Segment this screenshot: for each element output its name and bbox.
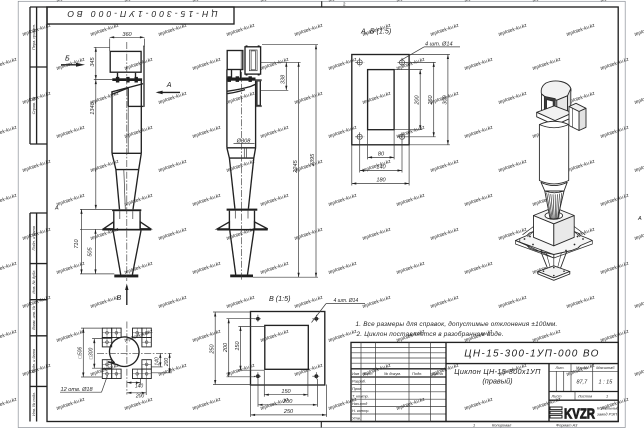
svg-text:300: 300 [442,94,448,104]
svg-text:Разраб.: Разраб. [352,379,366,384]
svg-text:4 шт. Ø14: 4 шт. Ø14 [334,298,359,304]
svg-text:2. Циклон поставляется в разоб: 2. Циклон поставляется в разобранном вид… [356,330,504,338]
svg-text:Лист: Лист [551,394,563,399]
svg-text:□506: □506 [78,347,84,359]
svg-text:345: 345 [90,56,96,66]
svg-text:Лит.: Лит. [554,365,564,370]
svg-text:Взам. инв. №: Взам. инв. № [31,305,36,330]
svg-text:А: А [637,216,642,222]
svg-text:Формат А3: Формат А3 [556,423,578,428]
svg-text:□300: □300 [89,348,95,360]
svg-text:А: А [166,80,172,89]
svg-text:360: 360 [122,32,132,38]
svg-text:Утв.: Утв. [352,416,361,421]
svg-text:Т. контр.: Т. контр. [352,393,369,398]
svg-text:KVZR: KVZR [564,407,595,423]
svg-text:Нач.отд: Нач.отд [352,401,368,406]
svg-text:200: 200 [135,394,145,400]
svg-text:200: 200 [415,94,421,105]
svg-text:ЦН-15-300-1УП-000 ВО: ЦН-15-300-1УП-000 ВО [464,349,600,360]
svg-text:250: 250 [210,343,216,354]
svg-text:Копировал: Копировал [492,423,512,428]
svg-text:260: 260 [428,94,434,105]
svg-text:завод РЭП: завод РЭП [596,412,617,417]
svg-text:250: 250 [283,409,294,415]
svg-text:(правый): (правый) [482,377,512,386]
svg-text:Циклон ЦН-15-300х1УП: Циклон ЦН-15-300х1УП [454,367,541,376]
svg-text:Котельный: Котельный [597,406,620,411]
svg-text:2395: 2395 [310,153,316,167]
svg-text:В: В [117,293,122,302]
svg-text:Подп. и дата: Подп. и дата [31,348,36,373]
svg-text:Подп. и дата: Подп. и дата [31,225,36,250]
svg-text:Листов: Листов [577,394,592,399]
svg-text:80: 80 [378,152,385,158]
svg-text:200: 200 [164,358,170,368]
svg-text:1340: 1340 [90,101,96,114]
svg-text:140: 140 [155,357,161,366]
svg-text:Н. контр.: Н. контр. [352,408,370,413]
svg-text:140: 140 [376,165,386,171]
svg-text:№ докум.: № докум. [384,371,401,376]
svg-text:ЦН-15-300-1УП-000 ВО: ЦН-15-300-1УП-000 ВО [64,9,217,19]
svg-text:150: 150 [235,340,241,350]
svg-text:1. Все размеры для справок, до: 1. Все размеры для справок, допустимые о… [356,320,558,328]
svg-text:Масса: Масса [576,365,588,370]
svg-text:180: 180 [376,178,386,184]
svg-text:Справ. №: Справ. № [31,96,36,114]
svg-text:Масштаб: Масштаб [596,365,615,370]
svg-text:А, Б (1:5): А, Б (1:5) [360,27,391,36]
svg-text:1 : 15: 1 : 15 [599,380,614,386]
svg-text:200: 200 [223,342,229,353]
svg-text:710: 710 [74,238,80,248]
svg-text:1: 1 [606,394,608,399]
svg-text:Подп.: Подп. [412,371,422,376]
svg-text:Изм: Изм [352,371,360,376]
svg-text:Инв. № подл.: Инв. № подл. [31,392,36,416]
svg-text:200: 200 [282,399,293,405]
svg-text:140: 140 [135,384,144,390]
svg-text:338: 338 [280,74,286,84]
svg-text:Лист: Лист [362,371,374,376]
svg-text:А: А [54,206,59,212]
svg-text:Инв. № дубл.: Инв. № дубл. [31,270,36,294]
svg-text:505: 505 [88,246,94,256]
svg-text:Б: Б [65,53,70,62]
svg-text:1: 1 [473,423,475,428]
svg-text:87,7: 87,7 [576,380,588,386]
svg-text:2245: 2245 [293,159,299,173]
svg-text:В (1:5): В (1:5) [269,294,291,303]
svg-text:Дата: Дата [432,371,444,376]
svg-text:Пров.: Пров. [352,386,362,391]
svg-text:Перв. примен.: Перв. примен. [31,24,36,50]
svg-text:150: 150 [281,389,291,395]
